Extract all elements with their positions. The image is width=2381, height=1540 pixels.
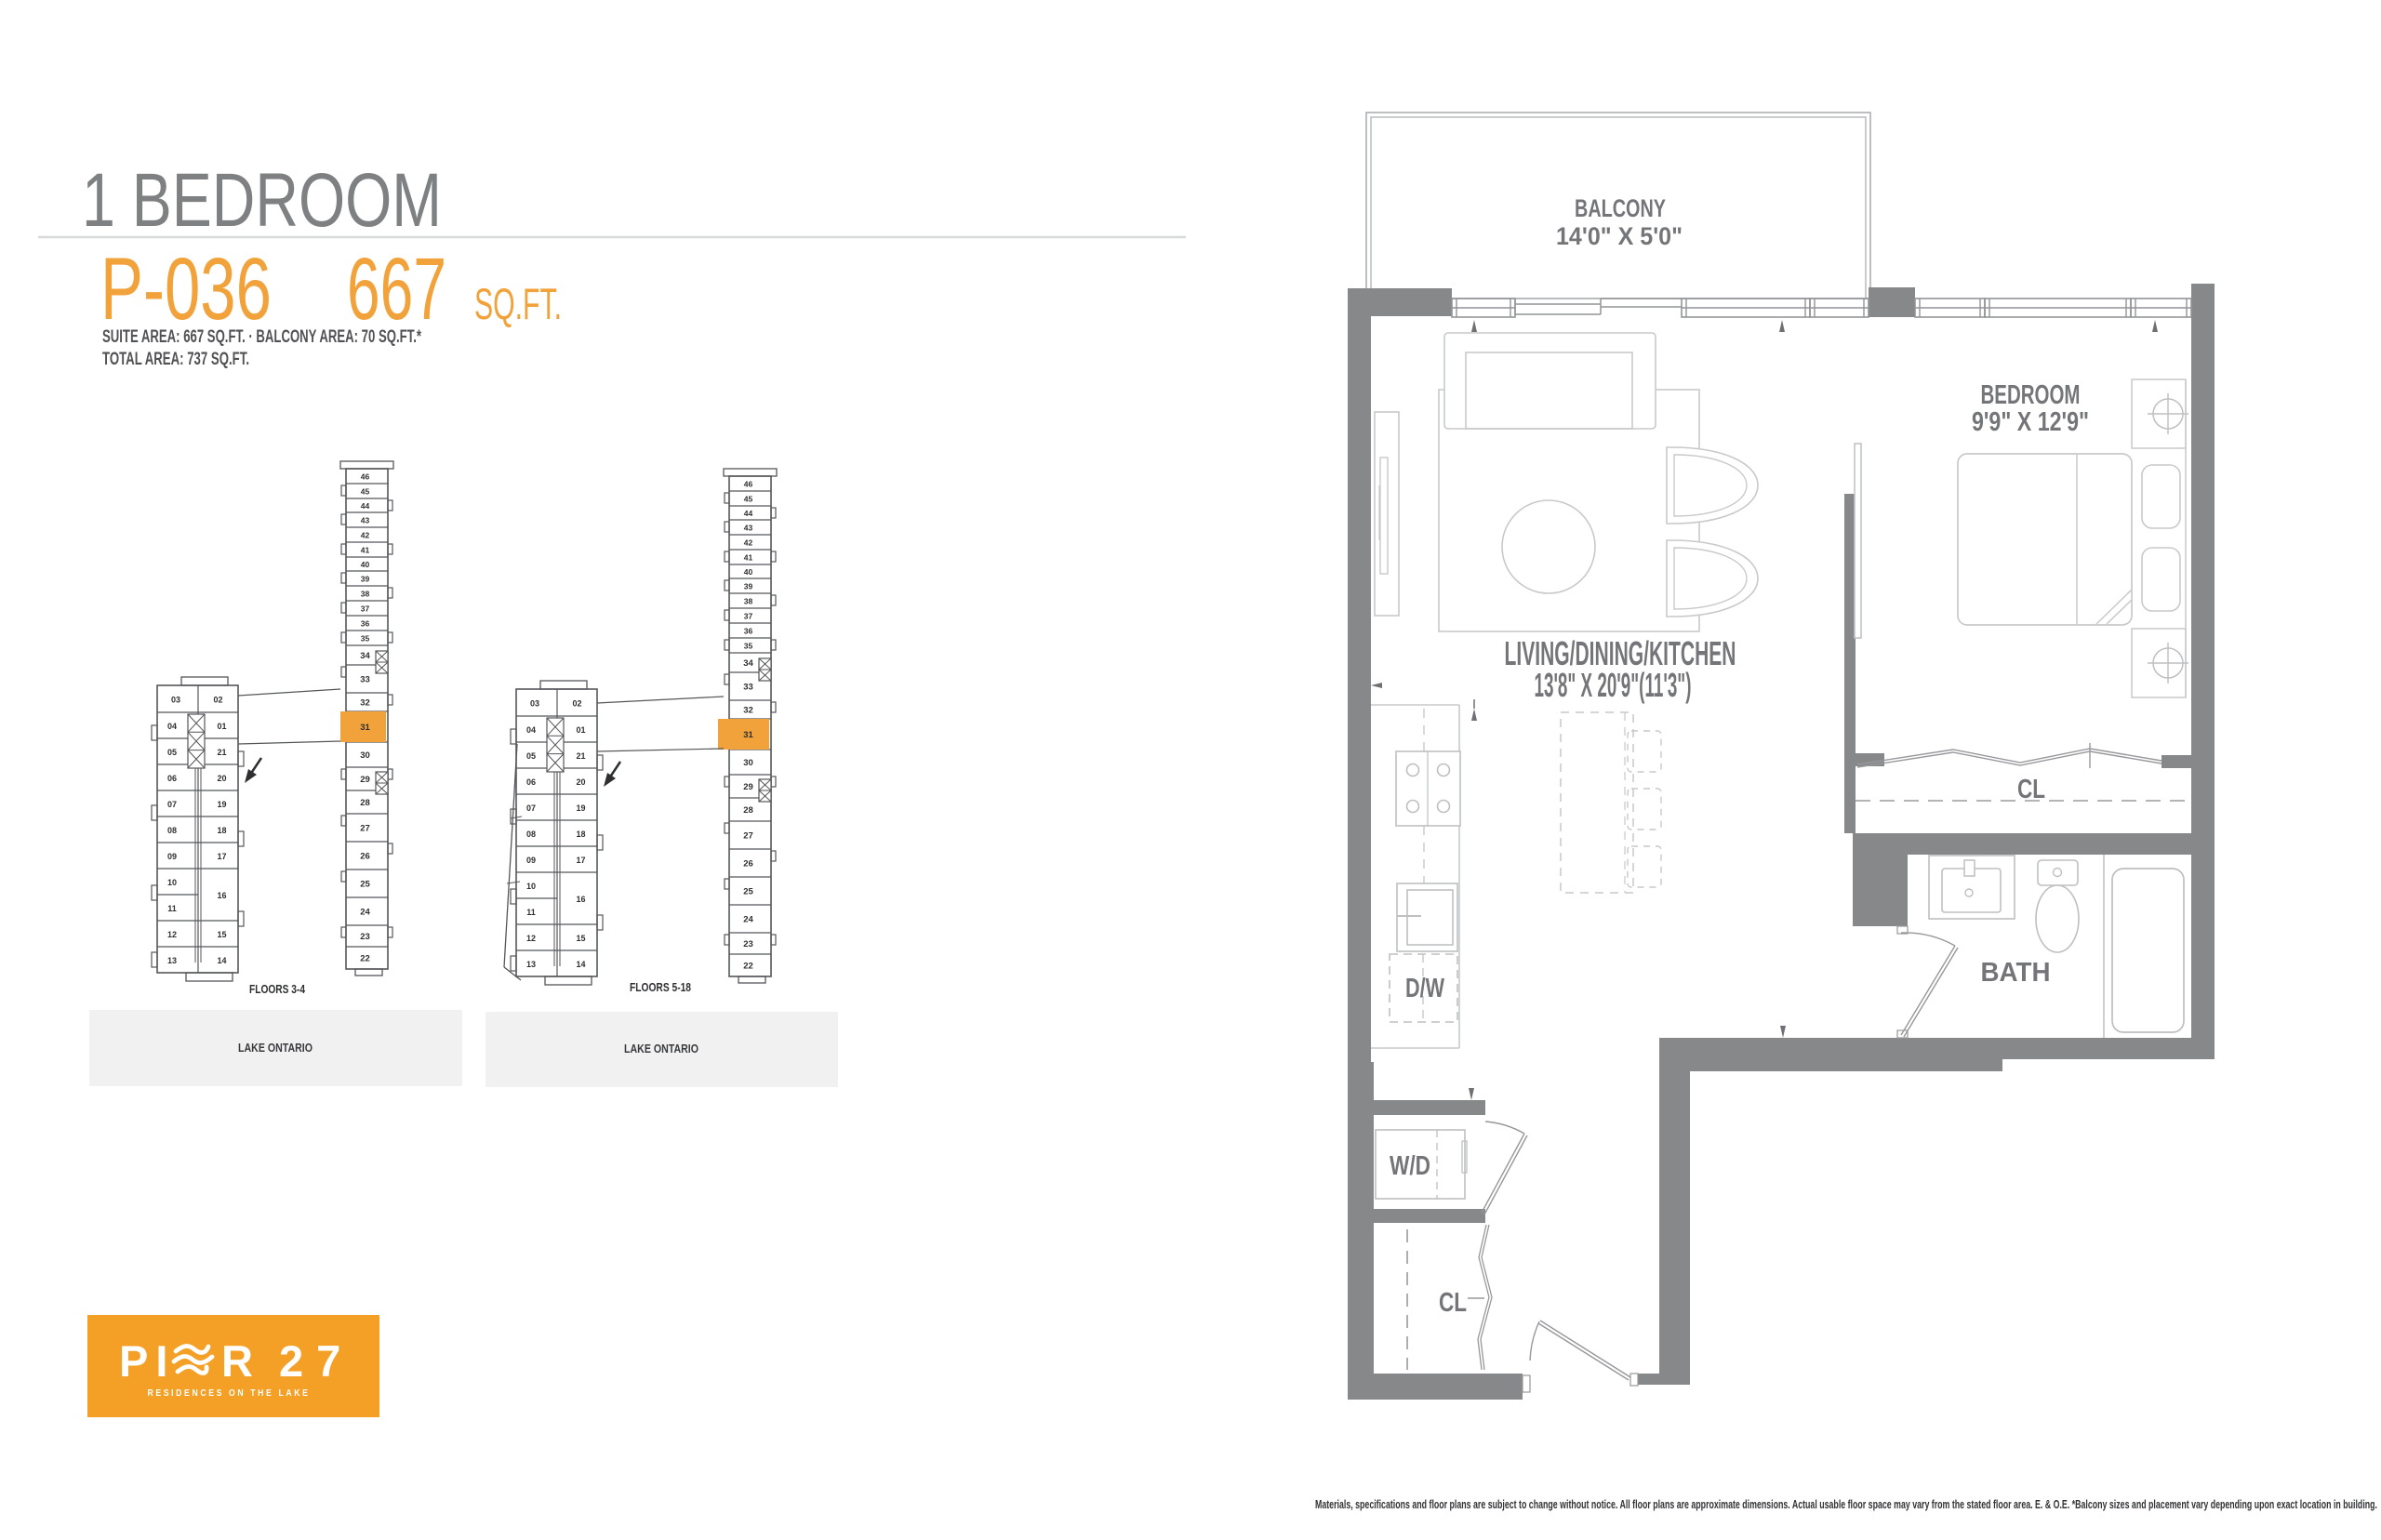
svg-text:45: 45 — [744, 495, 753, 504]
svg-text:SQ.FT.: SQ.FT. — [474, 279, 562, 328]
svg-text:20: 20 — [576, 777, 585, 787]
svg-text:20: 20 — [217, 774, 226, 783]
svg-text:04: 04 — [526, 725, 536, 735]
svg-text:24: 24 — [743, 915, 753, 925]
svg-text:39: 39 — [361, 575, 370, 584]
svg-text:25: 25 — [743, 887, 753, 897]
svg-text:01: 01 — [217, 722, 226, 731]
svg-text:13: 13 — [526, 960, 536, 969]
svg-text:27: 27 — [743, 831, 753, 842]
svg-text:13: 13 — [167, 956, 177, 965]
svg-text:667: 667 — [347, 240, 446, 339]
svg-text:02: 02 — [572, 699, 581, 709]
svg-text:BEDROOM: BEDROOM — [1981, 380, 2081, 410]
svg-text:W/D: W/D — [1390, 1151, 1430, 1181]
svg-text:07: 07 — [167, 800, 177, 809]
svg-text:TOTAL AREA: 737 SQ.FT.: TOTAL AREA: 737 SQ.FT. — [102, 350, 249, 369]
svg-text:19: 19 — [576, 803, 585, 813]
svg-text:35: 35 — [744, 642, 753, 651]
svg-text:03: 03 — [171, 696, 180, 705]
svg-text:P-036: P-036 — [100, 240, 272, 339]
svg-text:44: 44 — [361, 501, 370, 511]
svg-text:30: 30 — [360, 750, 370, 761]
svg-text:27: 27 — [360, 824, 370, 834]
svg-text:PI: PI — [119, 1336, 175, 1386]
svg-text:12: 12 — [167, 930, 177, 939]
svg-text:34: 34 — [360, 651, 370, 661]
svg-text:05: 05 — [167, 748, 177, 757]
svg-text:40: 40 — [744, 567, 753, 577]
svg-text:36: 36 — [361, 619, 370, 629]
svg-text:22: 22 — [360, 954, 370, 964]
svg-text:26: 26 — [743, 859, 753, 870]
svg-text:35: 35 — [361, 634, 370, 644]
svg-text:15: 15 — [576, 934, 585, 943]
svg-text:14: 14 — [217, 956, 226, 965]
svg-text:02: 02 — [213, 696, 222, 705]
svg-text:43: 43 — [744, 524, 753, 533]
svg-text:30: 30 — [743, 758, 753, 768]
svg-text:46: 46 — [361, 472, 370, 482]
svg-text:23: 23 — [360, 932, 370, 942]
svg-text:RESIDENCES ON THE LAKE: RESIDENCES ON THE LAKE — [148, 1388, 311, 1399]
svg-text:FLOORS 3-4: FLOORS 3-4 — [249, 982, 306, 996]
svg-text:21: 21 — [576, 751, 585, 761]
svg-text:25: 25 — [360, 880, 370, 890]
svg-text:14'0" X 5'0": 14'0" X 5'0" — [1556, 222, 1683, 250]
svg-text:10: 10 — [526, 882, 536, 891]
svg-text:04: 04 — [167, 722, 177, 731]
svg-text:18: 18 — [576, 830, 585, 839]
svg-text:24: 24 — [360, 908, 370, 918]
svg-text:14: 14 — [576, 960, 585, 969]
svg-text:42: 42 — [744, 538, 753, 548]
svg-text:46: 46 — [744, 480, 753, 489]
svg-text:10: 10 — [167, 878, 177, 887]
svg-text:42: 42 — [361, 531, 370, 540]
svg-text:09: 09 — [167, 852, 177, 861]
svg-text:28: 28 — [743, 805, 753, 816]
svg-text:1 BEDROOM: 1 BEDROOM — [82, 158, 442, 243]
svg-text:41: 41 — [744, 553, 753, 563]
svg-text:15: 15 — [217, 930, 226, 939]
svg-text:29: 29 — [360, 775, 370, 785]
svg-text:SUITE AREA: 667 SQ.FT. · BALCO: SUITE AREA: 667 SQ.FT. · BALCONY AREA: 7… — [102, 327, 421, 347]
svg-text:36: 36 — [744, 627, 753, 636]
svg-text:08: 08 — [526, 830, 536, 839]
svg-text:31: 31 — [360, 723, 370, 733]
svg-text:13'8" X 20'9"(11'3"): 13'8" X 20'9"(11'3") — [1535, 666, 1692, 704]
svg-text:37: 37 — [744, 612, 753, 621]
svg-text:BALCONY: BALCONY — [1575, 194, 1666, 222]
svg-text:11: 11 — [526, 908, 536, 917]
svg-text:26: 26 — [360, 852, 370, 862]
svg-text:22: 22 — [743, 962, 753, 972]
svg-text:FLOORS 5-18: FLOORS 5-18 — [630, 980, 691, 994]
svg-text:44: 44 — [744, 509, 753, 518]
svg-text:45: 45 — [361, 487, 370, 497]
svg-text:05: 05 — [526, 751, 536, 761]
svg-text:09: 09 — [526, 856, 536, 865]
svg-text:CL: CL — [1439, 1288, 1467, 1318]
svg-text:32: 32 — [743, 706, 753, 716]
svg-text:BATH: BATH — [1981, 958, 2051, 988]
svg-text:06: 06 — [167, 774, 177, 783]
svg-text:07: 07 — [526, 803, 536, 813]
svg-text:11: 11 — [167, 904, 177, 913]
svg-text:9'9" X 12'9": 9'9" X 12'9" — [1972, 407, 2089, 437]
svg-text:LAKE ONTARIO: LAKE ONTARIO — [624, 1042, 698, 1055]
svg-text:38: 38 — [744, 597, 753, 606]
svg-text:08: 08 — [167, 826, 177, 835]
svg-text:18: 18 — [217, 826, 226, 835]
svg-text:31: 31 — [743, 730, 753, 740]
svg-text:19: 19 — [217, 800, 226, 809]
svg-text:12: 12 — [526, 934, 536, 943]
svg-text:23: 23 — [743, 939, 753, 949]
svg-text:17: 17 — [576, 856, 585, 865]
svg-text:01: 01 — [576, 725, 585, 735]
svg-text:33: 33 — [360, 675, 370, 685]
svg-text:37: 37 — [361, 604, 370, 614]
svg-text:39: 39 — [744, 582, 753, 591]
svg-text:06: 06 — [526, 777, 536, 787]
svg-text:43: 43 — [361, 516, 370, 525]
svg-text:41: 41 — [361, 546, 370, 555]
svg-text:28: 28 — [360, 798, 370, 808]
svg-text:R: R — [221, 1336, 253, 1386]
svg-text:21: 21 — [217, 748, 226, 757]
svg-text:29: 29 — [743, 782, 753, 792]
svg-text:03: 03 — [530, 699, 539, 709]
svg-text:Materials, specifications and: Materials, specifications and floor plan… — [1315, 1498, 2377, 1511]
svg-text:27: 27 — [279, 1336, 353, 1386]
svg-text:38: 38 — [361, 590, 370, 599]
svg-text:17: 17 — [217, 852, 226, 861]
svg-text:16: 16 — [576, 895, 585, 904]
svg-text:34: 34 — [743, 658, 753, 669]
svg-text:40: 40 — [361, 560, 370, 569]
svg-text:16: 16 — [217, 891, 226, 900]
svg-text:D/W: D/W — [1405, 974, 1444, 1003]
svg-text:32: 32 — [360, 698, 370, 709]
svg-text:33: 33 — [743, 683, 753, 693]
svg-text:LAKE ONTARIO: LAKE ONTARIO — [238, 1042, 313, 1055]
